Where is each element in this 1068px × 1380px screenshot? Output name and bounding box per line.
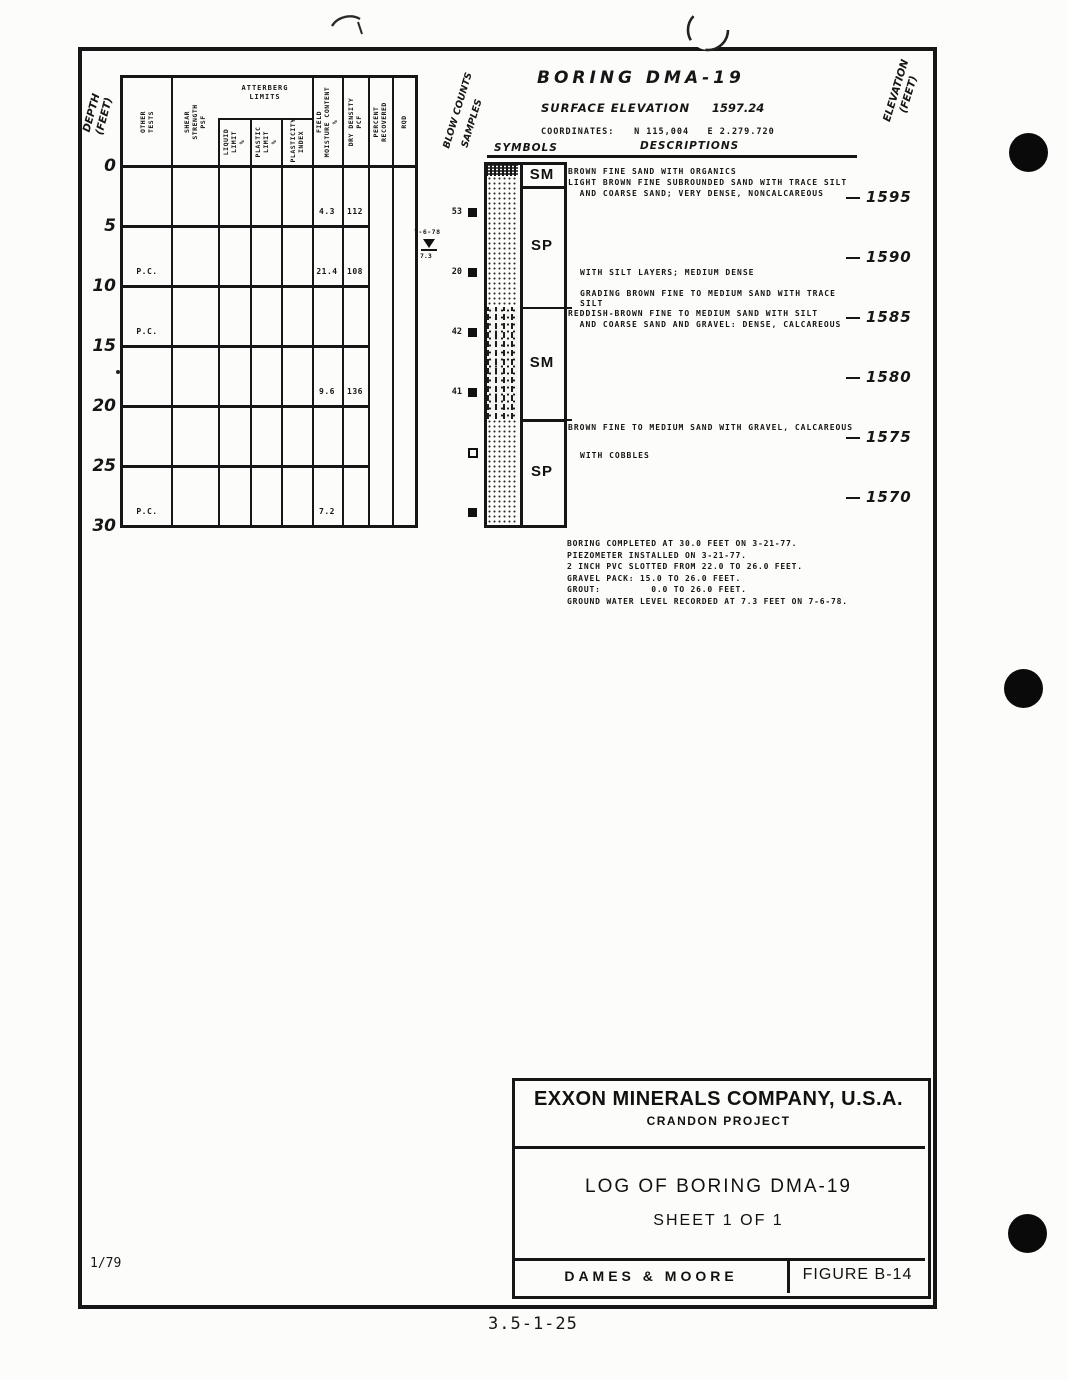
column-header-label: PERCENT RECOVERED: [372, 81, 388, 162]
note-line: GROUT: 0.0 TO 26.0 FEET.: [567, 584, 848, 596]
description-text: GRADING BROWN FINE TO MEDIUM SAND WITH T…: [580, 289, 836, 310]
sheet-number: SHEET 1 OF 1: [512, 1212, 925, 1230]
elevation-mark: 1575: [866, 428, 912, 446]
other-tests-value: P.C.: [123, 267, 171, 276]
water-level-icon: [423, 239, 435, 248]
note-line: GRAVEL PACK: 15.0 TO 26.0 FEET.: [567, 573, 848, 585]
depth-tick-label: 20: [70, 396, 116, 416]
column-header-plasticity: PLASTICITY INDEX: [281, 118, 312, 165]
title-block-divider: [514, 1258, 925, 1261]
scanned-boring-log-page: BORING DMA-19 SURFACE ELEVATION 1597.24 …: [0, 0, 1068, 1380]
sheet-reference: 3.5-1-25: [488, 1314, 578, 1334]
depth-tick-label: 30: [70, 516, 116, 536]
table-header-bottom-line: [123, 165, 415, 168]
column-header-label: PLASTIC LIMIT %: [253, 121, 277, 162]
completion-notes: BORING COMPLETED AT 30.0 FEET ON 3-21-77…: [567, 538, 848, 607]
field-moisture-value: 4.3: [312, 207, 342, 216]
elevation-tick: [846, 257, 860, 260]
blow-count-value: 41: [436, 387, 462, 397]
depth-grid-line: [123, 345, 368, 348]
hole-punch: [1009, 133, 1048, 172]
stratum-pattern-sp: [487, 176, 518, 307]
description-text: REDDISH-BROWN FINE TO MEDIUM SAND WITH S…: [568, 309, 841, 330]
dry-density-value: 108: [342, 267, 368, 276]
company-name: EXXON MINERALS COMPANY, U.S.A.: [512, 1088, 925, 1111]
log-title: LOG OF BORING DMA-19: [512, 1176, 925, 1198]
description-text: LIGHT BROWN FINE SUBROUNDED SAND WITH TR…: [568, 178, 847, 199]
column-header-label: OTHER TESTS: [139, 81, 155, 162]
column-header-label: FIELD MOISTURE CONTENT %: [315, 81, 339, 162]
blow-count-value: 53: [436, 207, 462, 217]
sample-marker-filled: [468, 268, 477, 277]
description-text: BROWN FINE TO MEDIUM SAND WITH GRAVEL, C…: [568, 423, 853, 434]
field-moisture-value: 21.4: [312, 267, 342, 276]
surface-elevation-value: 1597.24: [712, 101, 764, 115]
elevation-mark: 1585: [866, 308, 912, 326]
column-header-label: DRY DENSITY PCF: [347, 81, 363, 162]
soil-symbol-label: SM: [520, 354, 564, 371]
symbols-header: SYMBOLS: [494, 142, 558, 154]
column-header-plastic: PLASTIC LIMIT %: [250, 118, 281, 165]
symbol-box-line: [520, 186, 564, 189]
field-moisture-value: 7.2: [312, 507, 342, 516]
blow-count-value: 42: [436, 327, 462, 337]
column-header-rqd: RQD: [392, 78, 415, 165]
field-moisture-value: 9.6: [312, 387, 342, 396]
figure-number: FIGURE B-14: [790, 1266, 925, 1284]
note-line: GROUND WATER LEVEL RECORDED AT 7.3 FEET …: [567, 596, 848, 608]
depth-tick-label: 10: [70, 276, 116, 296]
elevation-mark: 1570: [866, 488, 912, 506]
stratum-pattern-sm: [487, 165, 518, 176]
dry-density-value: 136: [342, 387, 368, 396]
hole-punch: [1008, 1214, 1047, 1253]
elevation-mark: 1595: [866, 188, 912, 206]
depth-grid-line: [123, 465, 368, 468]
column-header-label: SHEAR STRENGTH PSF: [182, 81, 206, 162]
stratum-pattern-sp: [487, 419, 518, 525]
note-line: BORING COMPLETED AT 30.0 FEET ON 3-21-77…: [567, 538, 848, 550]
column-header-label: PLASTICITY INDEX: [288, 121, 304, 162]
blow-count-value: 20: [436, 267, 462, 277]
elevation-tick: [846, 437, 860, 440]
firm-name: DAMES & MOORE: [516, 1268, 786, 1284]
description-text: WITH SILT LAYERS; MEDIUM DENSE: [580, 268, 755, 279]
date-code: 1/79: [90, 1256, 121, 1271]
elevation-tick: [846, 317, 860, 320]
soil-symbol-label: SP: [520, 237, 564, 254]
stratum-boundary-tick: [554, 419, 572, 421]
depth-grid-line: [123, 225, 368, 228]
description-text: WITH COBBLES: [580, 451, 650, 462]
title-block-divider: [514, 1146, 925, 1149]
sample-marker-filled: [468, 208, 477, 217]
descriptions-rule: [487, 155, 857, 158]
table-column-line: [281, 118, 283, 525]
depth-grid-line: [123, 285, 368, 288]
other-tests-value: P.C.: [123, 327, 171, 336]
water-level-line: [421, 249, 437, 251]
elevation-mark: 1590: [866, 248, 912, 266]
column-header-label: LIQUID LIMIT %: [222, 121, 246, 162]
surface-elevation-label: SURFACE ELEVATION: [541, 101, 690, 115]
sample-marker-filled: [468, 328, 477, 337]
column-header-shear: SHEAR STRENGTH PSF: [171, 78, 218, 165]
column-header-moisture: FIELD MOISTURE CONTENT %: [312, 78, 342, 165]
boring-title: BORING DMA-19: [537, 68, 745, 88]
water-level-depth: 7.3: [420, 252, 432, 260]
project-name: CRANDON PROJECT: [512, 1114, 925, 1128]
elevation-tick: [846, 497, 860, 500]
elevation-mark: 1580: [866, 368, 912, 386]
depth-tick-label: 5: [70, 216, 116, 236]
soil-symbol-label: SP: [520, 463, 564, 480]
column-header-density: DRY DENSITY PCF: [342, 78, 368, 165]
other-tests-value: P.C.: [123, 507, 171, 516]
sample-marker-open: [468, 448, 478, 458]
depth-tick-label: 0: [70, 156, 116, 176]
stratum-pattern-sm: [487, 307, 518, 420]
top-hole-punch: [682, 4, 734, 56]
column-header-other: OTHER TESTS: [123, 78, 171, 165]
coordinates-label: COORDINATES:: [541, 127, 614, 137]
note-line: PIEZOMETER INSTALLED ON 3-21-77.: [567, 550, 848, 562]
sample-marker-filled: [468, 508, 477, 517]
surface-elevation-line: SURFACE ELEVATION 1597.24: [541, 97, 764, 116]
coordinates-line: COORDINATES: N 115,004 E 2.279.720: [541, 119, 775, 138]
pen-mark: [328, 10, 374, 46]
coordinates-value: N 115,004 E 2.279.720: [634, 127, 775, 137]
sample-marker-filled: [468, 388, 477, 397]
soil-symbol-label: SM: [520, 166, 564, 183]
description-text: BROWN FINE SAND WITH ORGANICS: [568, 167, 737, 178]
descriptions-header: DESCRIPTIONS: [640, 140, 739, 152]
elevation-tick: [846, 377, 860, 380]
depth-tick-label: 15: [70, 336, 116, 356]
hole-punch: [1004, 669, 1043, 708]
column-header-liquid: LIQUID LIMIT %: [218, 118, 250, 165]
elevation-tick: [846, 197, 860, 200]
table-column-line: [250, 118, 252, 525]
column-header-label: RQD: [399, 81, 407, 162]
column-header-atterberg: ATTERBERG LIMITS: [218, 84, 312, 103]
dry-density-value: 112: [342, 207, 368, 216]
column-header-percent: PERCENT RECOVERED: [368, 78, 392, 165]
depth-grid-line: [123, 405, 368, 408]
depth-tick-label: 25: [70, 456, 116, 476]
note-line: 2 INCH PVC SLOTTED FROM 22.0 TO 26.0 FEE…: [567, 561, 848, 573]
table-column-line: [218, 118, 220, 525]
